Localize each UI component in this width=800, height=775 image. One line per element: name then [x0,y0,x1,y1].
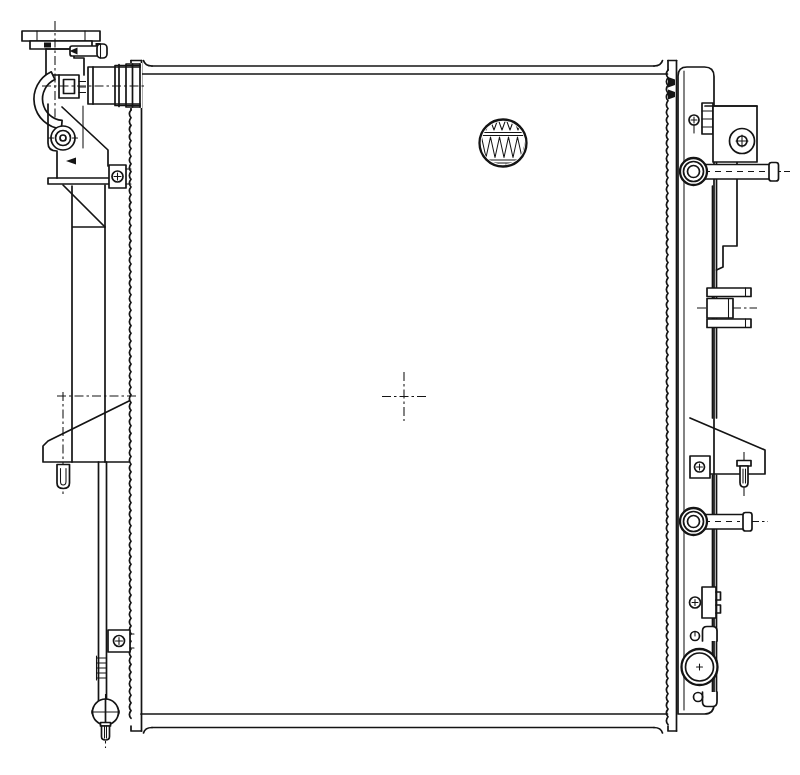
inlet-pipe-joint: Upper inlet pipe joint [42,63,147,108]
right-side-plate: Right serrated side plate [666,61,676,732]
fin-zigzag-middle [477,137,527,158]
drain-cock: Drain cock with wing handle and stem [92,694,119,748]
left-header-tank: Left header tank with circular boss [48,104,110,462]
serrated-edge [129,110,131,718]
serrated-edge [666,70,668,725]
radiator-line-drawing: Radiator core (large rectangular panel) … [0,0,800,775]
left-triangle-bracket: Left triangular mounting foot [43,396,136,462]
right-support-rail: Right vertical support rail [713,162,738,700]
lower-left-bracket: Lower left bracket with bolt [108,630,134,652]
tank-boss-icon [51,126,75,150]
overflow-tube: Overflow tube with cap [70,44,108,58]
lower-mount-stud: Lower right mounting stud with grommet [680,508,768,535]
center-crosshair-mark: Center crosshair reference mark [382,372,426,421]
fin-pattern-detail: Circular inset showing corrugated fin pa… [477,119,527,174]
upper-left-bracket: Upper left mounting bracket with bolt [109,165,131,188]
diagram-canvas: Radiator core (large rectangular panel) … [0,0,800,775]
left-lower-channel: Left lower channel with ribs [97,462,107,706]
left-mount-pin: Left lower mounting pin [57,392,70,497]
